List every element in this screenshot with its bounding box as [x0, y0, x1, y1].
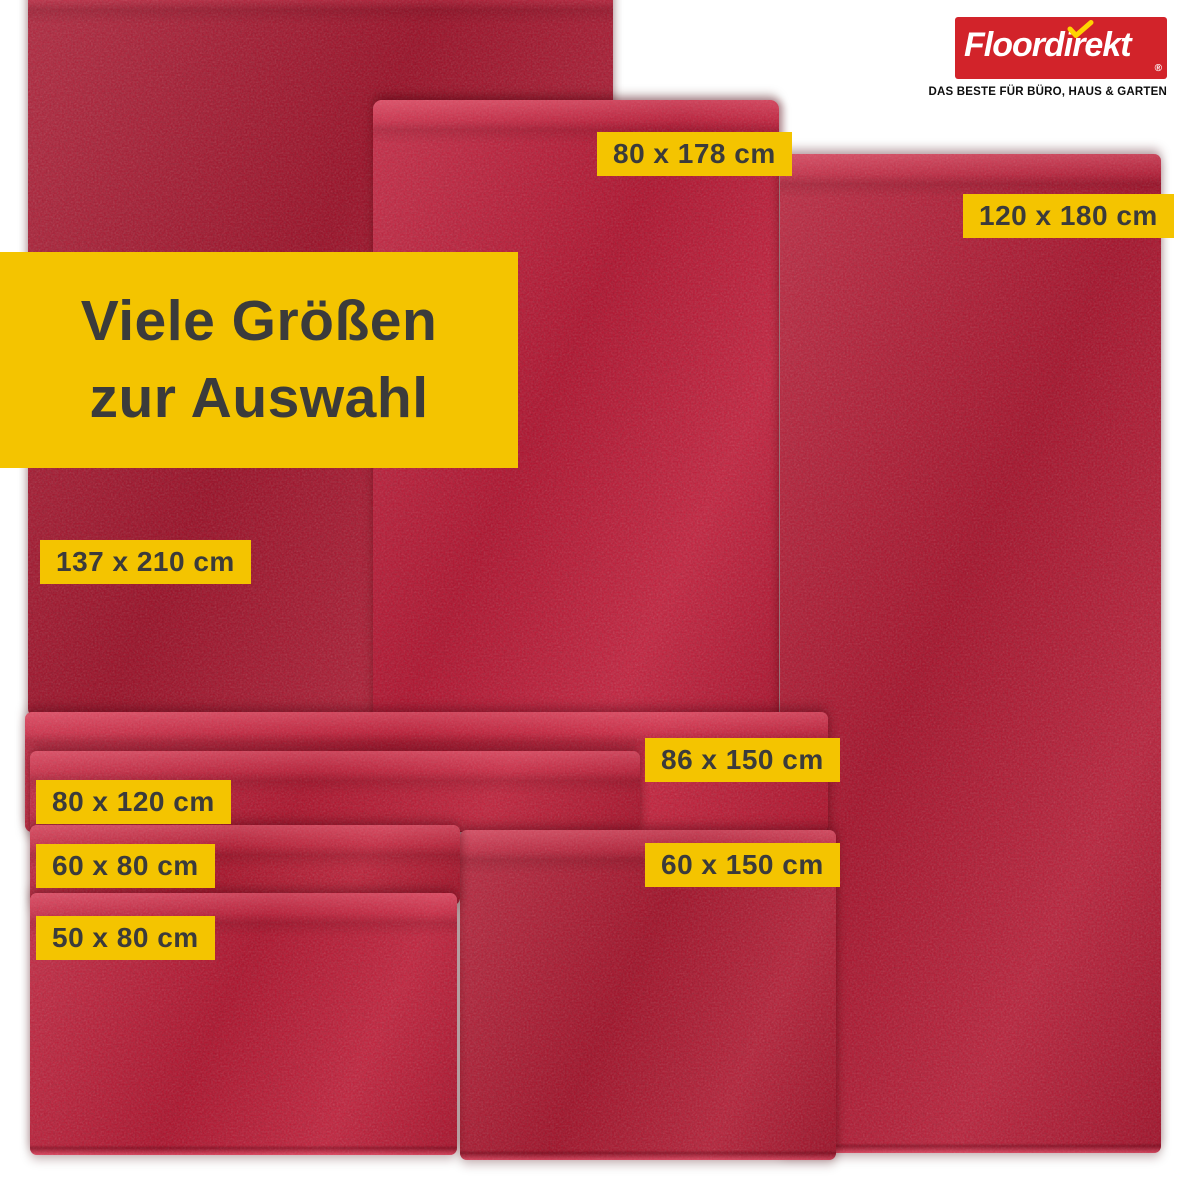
- size-label-60x150: 60 x 150 cm: [645, 843, 840, 887]
- size-label-137x210: 137 x 210 cm: [40, 540, 251, 584]
- check-icon: [1067, 20, 1094, 39]
- rug-120x180: [780, 154, 1161, 1153]
- registered-mark: ®: [1155, 63, 1162, 74]
- headline-banner: Viele Größen zur Auswahl: [0, 252, 518, 468]
- headline-line-1: Viele Größen: [81, 283, 438, 360]
- headline-line-2: zur Auswahl: [89, 360, 428, 437]
- rug-sheen: [780, 154, 1161, 1153]
- logo-tagline: DAS BESTE FÜR BÜRO, HAUS & GARTEN: [928, 86, 1167, 98]
- size-label-60x80: 60 x 80 cm: [36, 844, 215, 888]
- size-label-80x120: 80 x 120 cm: [36, 780, 231, 824]
- size-label-80x178: 80 x 178 cm: [597, 132, 792, 176]
- brand-logo: Floordirekt ®: [955, 17, 1167, 79]
- size-label-50x80: 50 x 80 cm: [36, 916, 215, 960]
- brand-name: Floordirekt: [964, 26, 1131, 65]
- size-label-86x150: 86 x 150 cm: [645, 738, 840, 782]
- size-label-120x180: 120 x 180 cm: [963, 194, 1174, 238]
- product-infographic: 80 x 178 cm 120 x 180 cm 137 x 210 cm 86…: [0, 0, 1200, 1200]
